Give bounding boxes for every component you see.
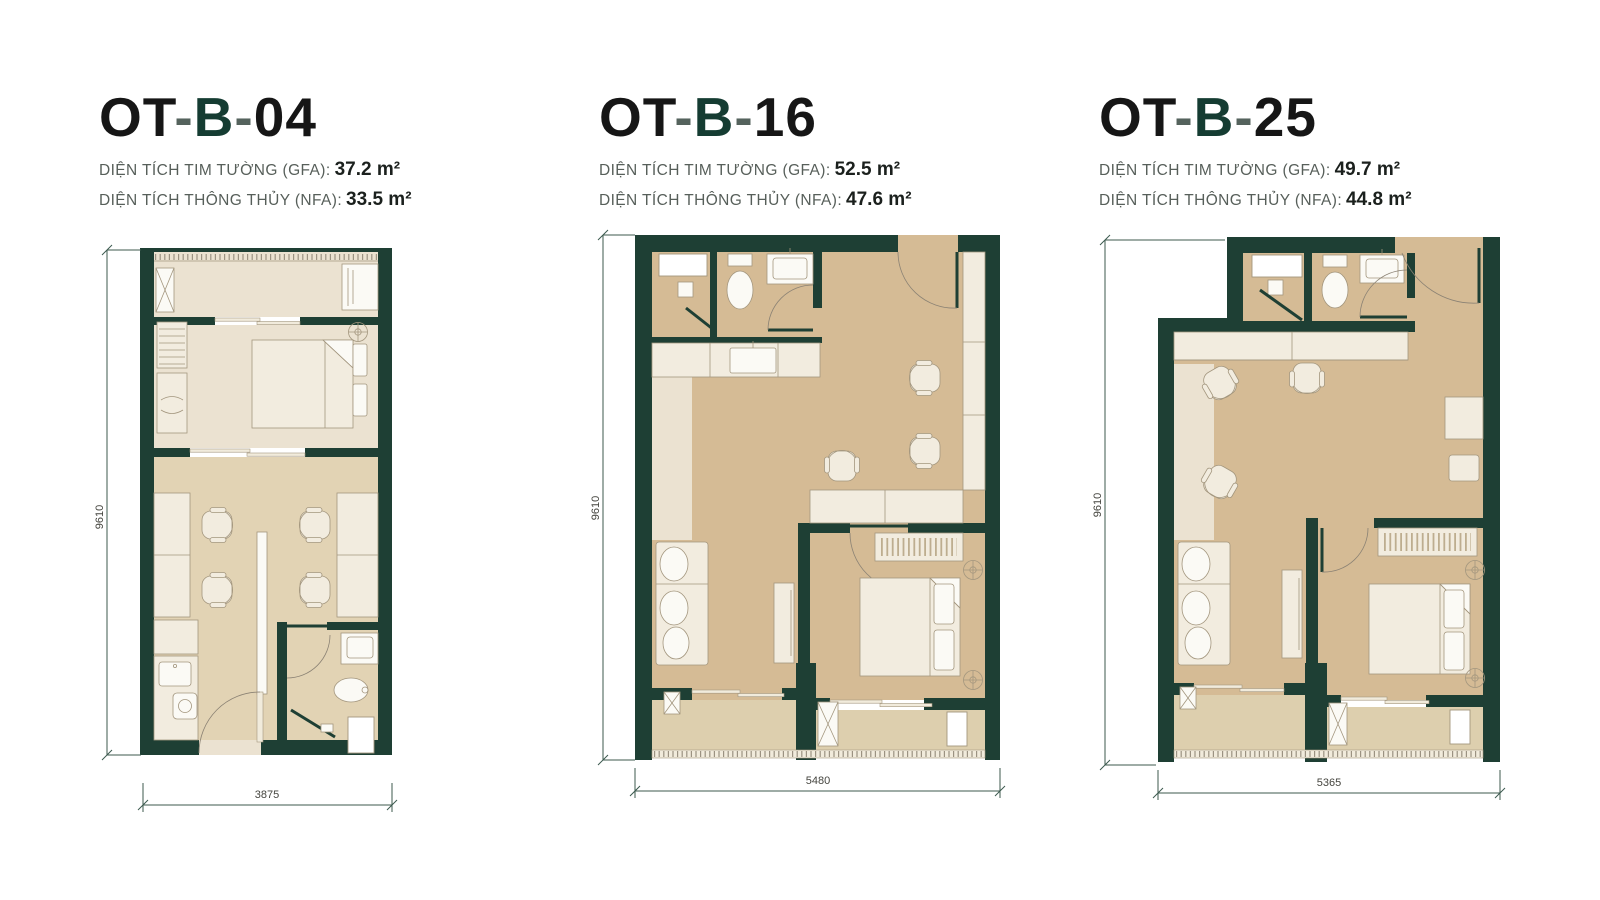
floor-plan-sheet: { "colors": { "wall": "#1e3f34", "accent… [0,0,1600,900]
shaft [659,254,707,276]
svg-text:9610: 9610 [1092,493,1104,517]
kitchen-counter [154,620,198,740]
office-chair [1290,363,1325,394]
gfa-value: 37.2 m² [335,159,400,180]
ceiling-fan-icon [964,671,983,690]
svg-text:9610: 9610 [95,505,106,529]
unit-title: OT-B-25 [1099,88,1412,146]
kitchen-counter [652,341,820,377]
svg-text:3875: 3875 [255,789,279,801]
balcony-shelf [342,264,378,310]
unit-card-ot-b-04: OT-B-04 DIỆN TÍCH TIM TƯỜNG (GFA):37.2 m… [99,88,412,211]
unit-title: OT-B-16 [599,88,912,146]
dimension-width: 5480 [630,768,1005,798]
ceiling-fan-icon [1466,669,1485,688]
unit-card-ot-b-25: OT-B-25 DIỆN TÍCH TIM TƯỜNG (GFA):49.7 m… [1099,88,1412,211]
office-chair [202,508,233,543]
floor-plan-ot-b-04: 9610 3875 [95,240,415,825]
office-chair [299,573,330,608]
nfa-value: 44.8 m² [1346,189,1411,210]
sofa [1178,542,1230,665]
bed [860,578,960,676]
unit-card-ot-b-16: OT-B-16 DIỆN TÍCH TIM TƯỜNG (GFA):52.5 m… [599,88,912,211]
wardrobe [157,322,187,368]
nfa-row: DIỆN TÍCH THÔNG THỦY (NFA):47.6 m² [599,189,912,211]
tv-cabinet [774,583,794,663]
gfa-label: DIỆN TÍCH TIM TƯỜNG (GFA): [1099,162,1331,179]
svg-text:5365: 5365 [1317,777,1341,789]
shaft [1252,255,1302,277]
dimension-width: 5365 [1153,770,1505,800]
office-chair [825,450,860,481]
gfa-label: DIỆN TÍCH TIM TƯỜNG (GFA): [599,162,831,179]
gfa-label: DIỆN TÍCH TIM TƯỜNG (GFA): [99,162,331,179]
gfa-row: DIỆN TÍCH TIM TƯỜNG (GFA):52.5 m² [599,159,912,181]
nfa-row: DIỆN TÍCH THÔNG THỦY (NFA):44.8 m² [1099,189,1412,211]
ac-closet [156,268,174,312]
nfa-value: 33.5 m² [346,189,411,210]
bed [252,340,367,428]
sofa [656,542,708,665]
gfa-row: DIỆN TÍCH TIM TƯỜNG (GFA):37.2 m² [99,159,412,181]
office-chair [909,434,940,469]
nfa-label: DIỆN TÍCH THÔNG THỦY (NFA): [1099,192,1342,209]
dimension-height: 9610 [95,245,141,760]
bed [1369,584,1470,674]
svg-text:5480: 5480 [806,775,830,787]
gfa-value: 49.7 m² [1335,159,1400,180]
dimension-width: 3875 [138,783,397,812]
unit-title: OT-B-04 [99,88,412,146]
hall-cabinet [257,532,267,694]
office-chair [909,361,940,396]
wardrobe [1378,528,1477,556]
ceiling-fan-icon [349,323,368,342]
dimension-height: 9610 [590,230,635,765]
ceiling-fan-icon [964,561,983,580]
gfa-row: DIỆN TÍCH TIM TƯỜNG (GFA):49.7 m² [1099,159,1412,181]
nfa-value: 47.6 m² [846,189,911,210]
ceiling-fan-icon [1466,561,1485,580]
floor-plan-ot-b-25: 9610 5365 [1092,218,1522,818]
office-chair [202,573,233,608]
office-chair [299,508,330,543]
gfa-value: 52.5 m² [835,159,900,180]
wardrobe [875,533,963,561]
nfa-row: DIỆN TÍCH THÔNG THỦY (NFA):33.5 m² [99,189,412,211]
floor-plan-ot-b-16: 9610 5480 [590,218,1015,818]
nfa-label: DIỆN TÍCH THÔNG THỦY (NFA): [99,192,342,209]
nfa-label: DIỆN TÍCH THÔNG THỦY (NFA): [599,192,842,209]
svg-text:9610: 9610 [590,496,602,520]
dresser [157,373,187,433]
tv-cabinet [1282,570,1302,658]
